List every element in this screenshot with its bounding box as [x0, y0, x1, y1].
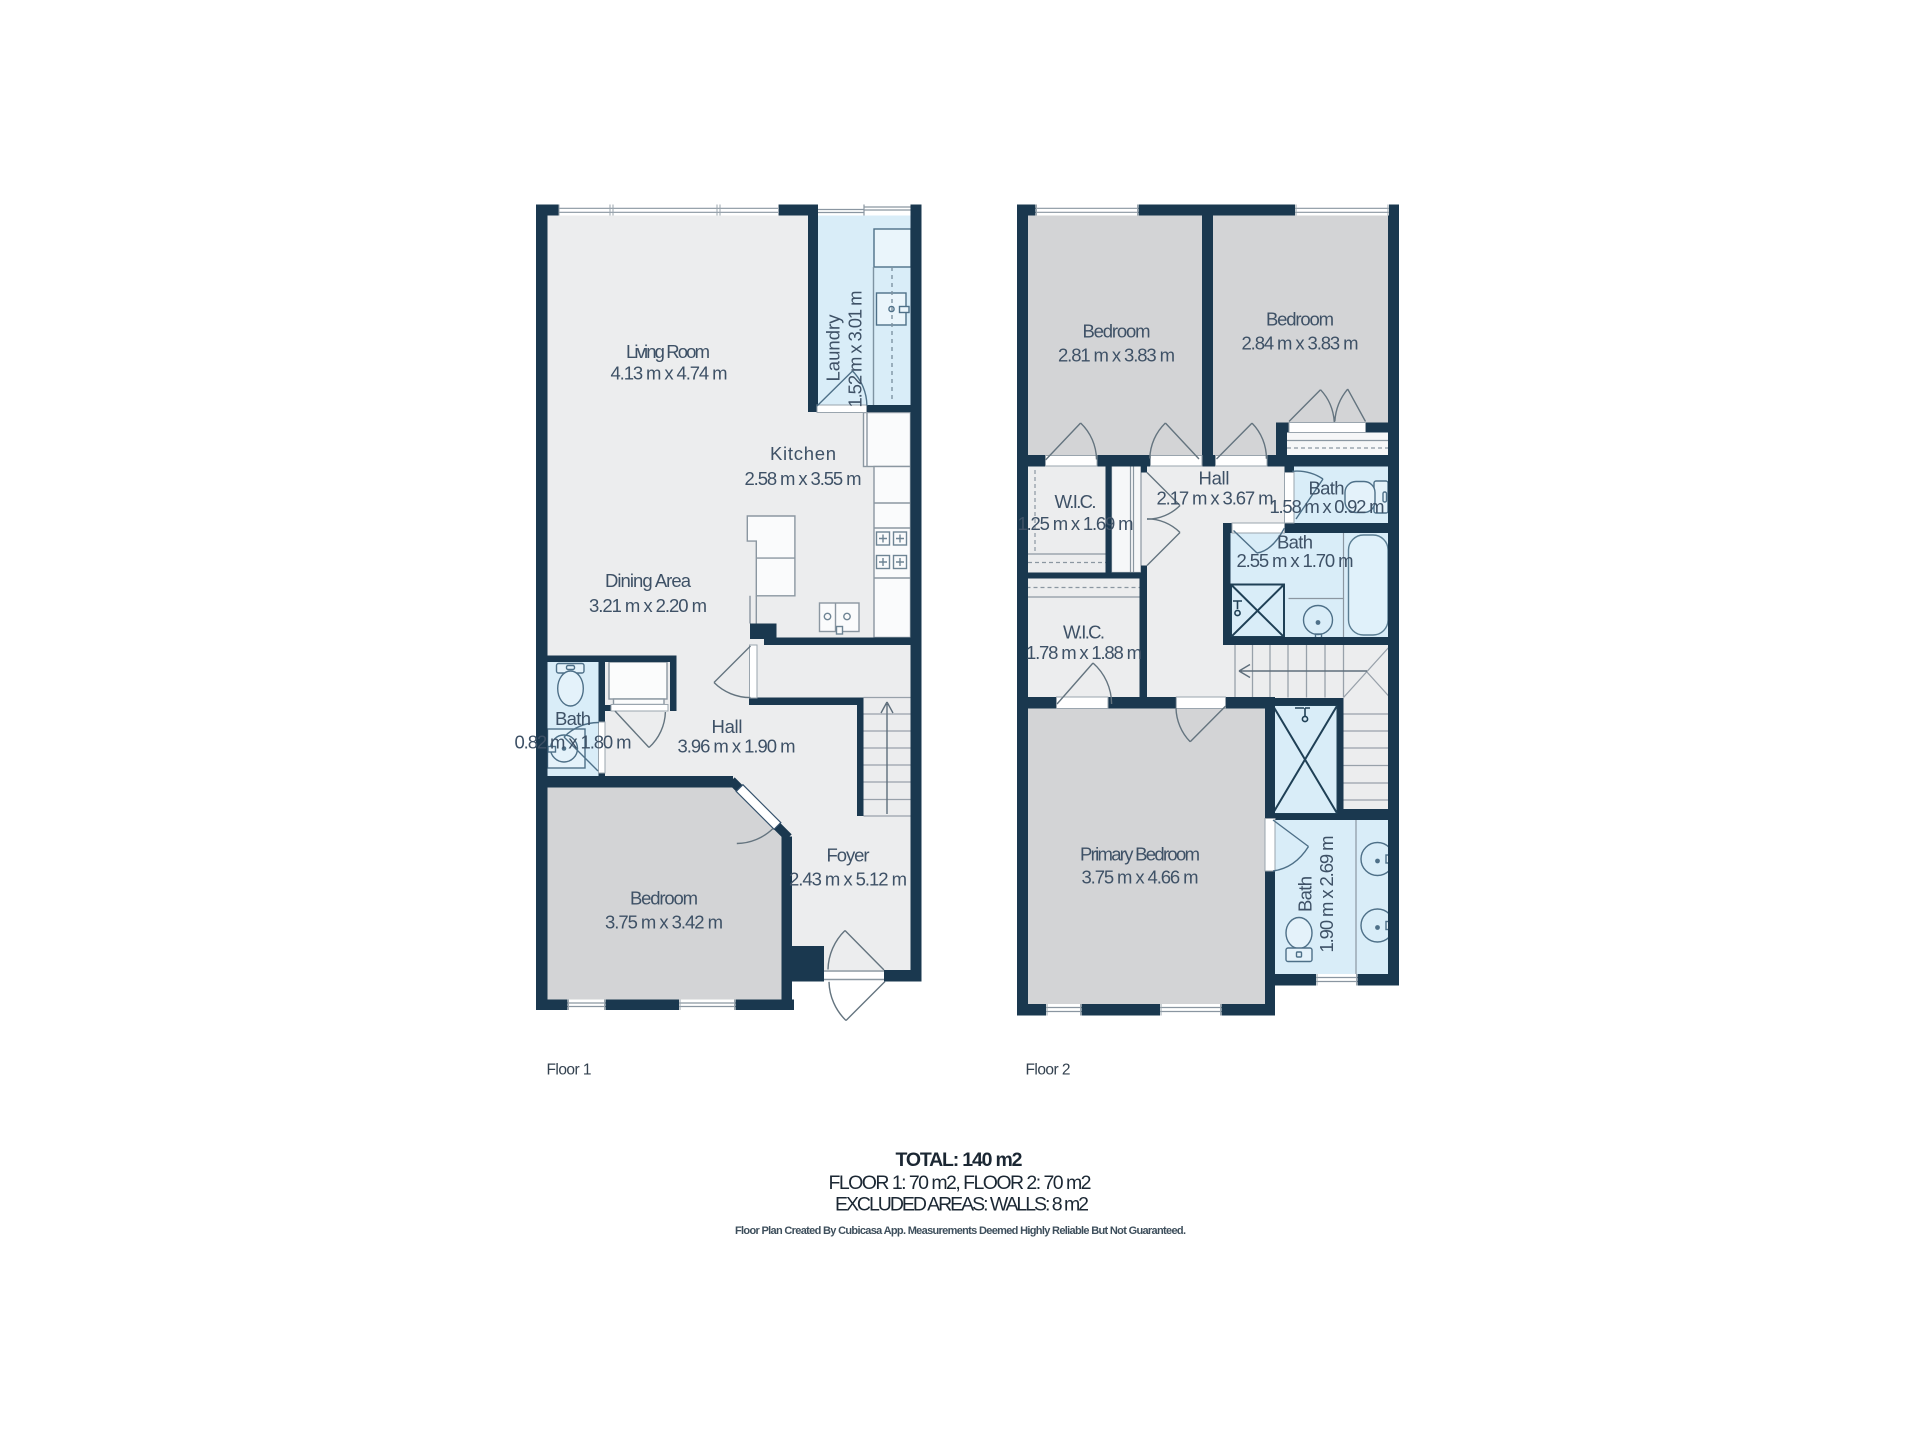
svg-text:Bath: Bath: [1295, 876, 1316, 912]
svg-text:1.58 m x 0.92 m: 1.58 m x 0.92 m: [1270, 496, 1385, 517]
svg-text:2.58 m x 3.55 m: 2.58 m x 3.55 m: [745, 468, 862, 489]
svg-text:Floor Plan Created By Cubicasa: Floor Plan Created By Cubicasa App. Meas…: [735, 1225, 1186, 1237]
svg-text:Living Room: Living Room: [626, 341, 710, 362]
svg-text:Floor 1: Floor 1: [547, 1062, 592, 1079]
svg-text:W.I.C.: W.I.C.: [1055, 491, 1097, 512]
svg-text:Hall: Hall: [712, 716, 743, 737]
svg-text:3.96 m x 1.90 m: 3.96 m x 1.90 m: [678, 736, 796, 757]
svg-text:Primary Bedroom: Primary Bedroom: [1080, 844, 1200, 865]
svg-text:Kitchen: Kitchen: [770, 443, 836, 464]
svg-text:1.78 m x 1.88 m: 1.78 m x 1.88 m: [1026, 642, 1142, 663]
svg-text:3.75 m x 3.42 m: 3.75 m x 3.42 m: [605, 912, 723, 933]
svg-text:1.25 m x 1.69 m: 1.25 m x 1.69 m: [1018, 513, 1134, 534]
svg-text:Foyer: Foyer: [827, 845, 870, 866]
svg-text:Laundry: Laundry: [823, 314, 844, 382]
svg-text:3.21 m x 2.20 m: 3.21 m x 2.20 m: [589, 595, 707, 616]
svg-text:1.52 m x 3.01 m: 1.52 m x 3.01 m: [845, 291, 866, 408]
svg-text:Dining Area: Dining Area: [605, 570, 692, 591]
svg-text:1.90 m x 2.69 m: 1.90 m x 2.69 m: [1316, 836, 1337, 953]
svg-text:2.84 m x 3.83 m: 2.84 m x 3.83 m: [1242, 333, 1359, 354]
svg-text:2.17 m x 3.67 m: 2.17 m x 3.67 m: [1157, 488, 1274, 509]
svg-text:3.75 m x 4.66 m: 3.75 m x 4.66 m: [1082, 867, 1199, 888]
svg-text:0.82 m x 1.80 m: 0.82 m x 1.80 m: [515, 732, 632, 753]
svg-text:Bedroom: Bedroom: [1266, 309, 1334, 330]
svg-text:Bedroom: Bedroom: [630, 888, 698, 909]
svg-text:4.13 m x 4.74 m: 4.13 m x 4.74 m: [611, 363, 728, 384]
svg-text:2.55 m x 1.70 m: 2.55 m x 1.70 m: [1237, 550, 1354, 571]
svg-text:2.81 m x 3.83 m: 2.81 m x 3.83 m: [1058, 345, 1175, 366]
svg-text:FLOOR 1: 70 m2, FLOOR 2: 70 m2: FLOOR 1: 70 m2, FLOOR 2: 70 m2: [829, 1172, 1092, 1194]
svg-text:EXCLUDED AREAS: WALLS: 8 m2: EXCLUDED AREAS: WALLS: 8 m2: [835, 1194, 1089, 1216]
svg-text:TOTAL: 140 m2: TOTAL: 140 m2: [896, 1149, 1023, 1171]
svg-text:Floor 2: Floor 2: [1026, 1062, 1071, 1079]
svg-text:Bath: Bath: [555, 708, 591, 729]
svg-text:W.I.C.: W.I.C.: [1063, 622, 1105, 643]
svg-text:Hall: Hall: [1199, 468, 1230, 489]
svg-text:2.43 m x 5.12 m: 2.43 m x 5.12 m: [789, 869, 907, 890]
svg-text:Bedroom: Bedroom: [1083, 321, 1151, 342]
